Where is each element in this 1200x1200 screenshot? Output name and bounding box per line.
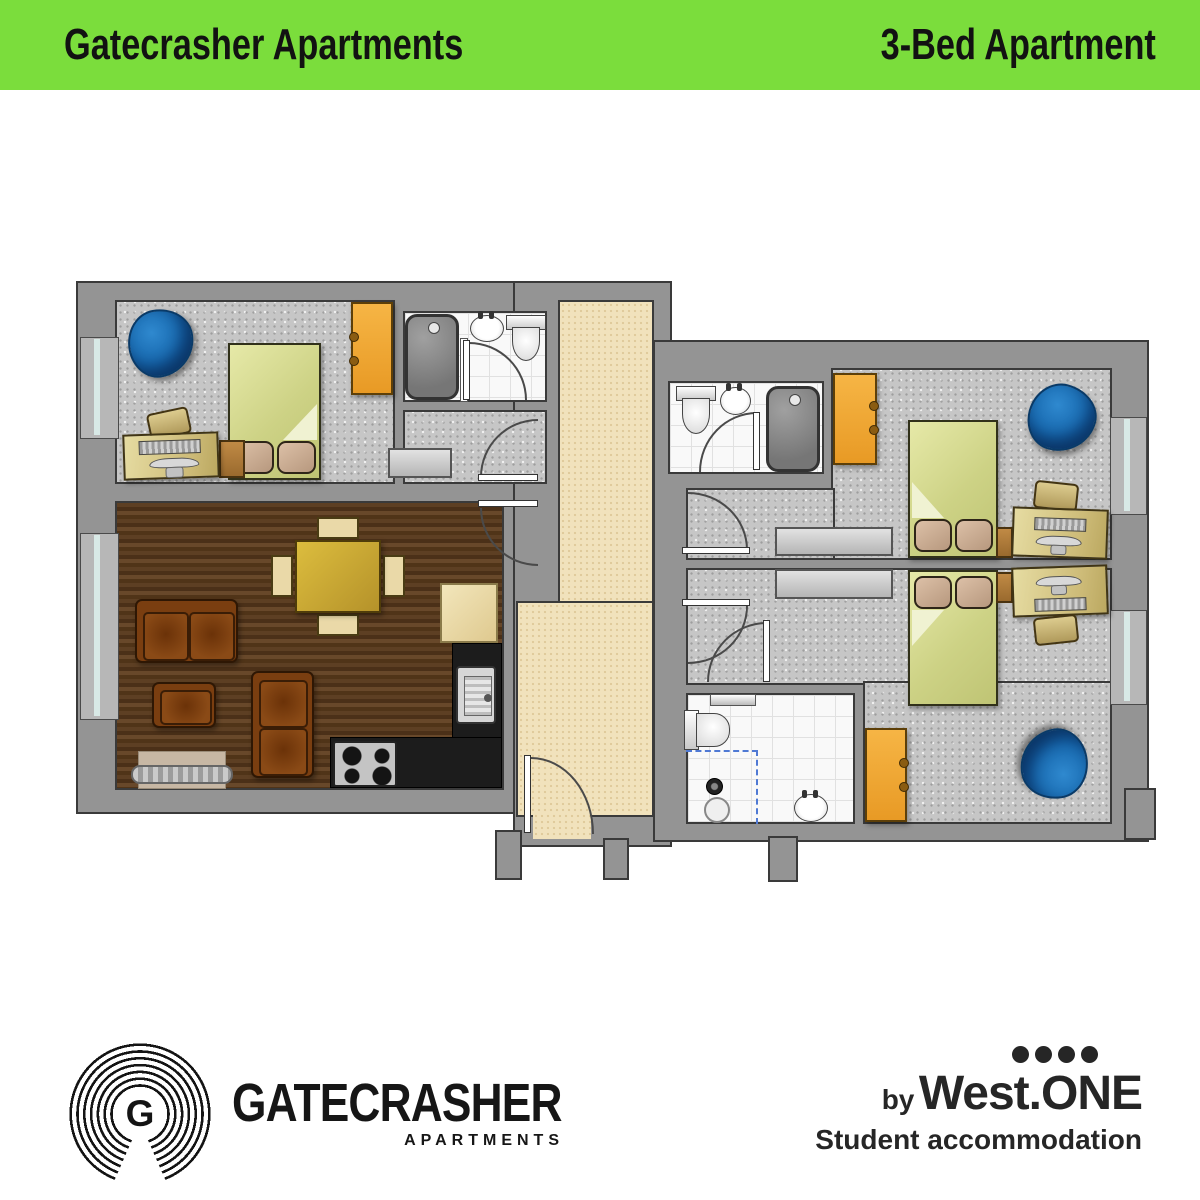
sink-3-basin [794,794,828,822]
brand-wordmark: GATECRASHER [232,1072,634,1134]
sofa-2seat [135,599,238,663]
window-2-glass [94,535,100,716]
bed-2-pillow2 [955,519,993,552]
wardrobe-3-handle [899,758,909,768]
sofa-cushion2 [189,612,235,661]
sink-1-tap2 [489,311,494,319]
dot-icon [1058,1046,1075,1063]
kitchen-sink [456,666,496,724]
desk-1-monitor-stand [165,467,183,479]
window-3-glass [1124,419,1130,511]
shower-2 [766,386,820,472]
sink-2 [718,385,752,415]
shower-floor-fitting [704,797,730,823]
wall-stub-2 [605,840,627,878]
westone-dots [1006,1046,1098,1068]
westone-name: West.ONE [919,1067,1142,1120]
kitchen-sink-tap [484,694,492,702]
wall-stub-3 [770,838,796,880]
dining-table [295,540,381,613]
wardrobe-1 [351,302,393,395]
door-leaf-bedroom3 [682,599,750,606]
wardrobe-2 [833,373,877,465]
bed-3 [908,570,998,706]
floorplan [0,0,1200,1200]
bed-2-pillow [914,519,952,552]
sink-2-basin [720,387,751,415]
shower-2-head [789,394,801,406]
toilet-2 [676,386,714,434]
armchair [152,682,216,728]
window-4-glass [1124,612,1130,701]
desk-3-monitor-stand [1051,585,1067,596]
door-leaf-bedroom2 [682,547,750,554]
wardrobe-1-handle [349,332,359,342]
sink-1-basin [470,315,504,342]
wardrobe-2-handle [869,401,879,411]
dot-icon [1035,1046,1052,1063]
dining-chair-east [383,555,405,597]
wall-stub-1 [497,832,520,878]
stove [333,741,397,787]
sink-1 [468,313,506,342]
bed-2-fold [912,482,944,518]
sink-2-tap2 [737,383,742,391]
shower-1-head [428,322,440,334]
table-bedroom3 [775,569,893,599]
bed-1-fold [283,404,317,440]
desk-1 [122,431,220,480]
dot-icon [1081,1046,1098,1063]
bedside-table-1 [219,440,245,478]
bed-3-pillow [914,576,952,609]
brand-subtext: APARTMENTS [232,1132,564,1150]
bed-2 [908,420,998,558]
sink-3 [792,792,830,822]
toilet-3 [684,710,730,748]
door-leaf-living [478,500,538,507]
radiator-living [131,765,233,784]
desk-1-keyboard [138,439,200,455]
wardrobe-2-handle2 [869,425,879,435]
towel-rail-bathroom3 [710,694,756,706]
kitchen-worktop [440,583,498,643]
westone-logo: by West.ONE [882,1066,1142,1121]
armchair-cushion [160,690,212,725]
desk-3 [1011,564,1109,617]
desk-2-monitor-stand [1050,545,1066,556]
sink-1-tap [478,311,483,319]
sofa-cushion [143,612,189,661]
dot-icon [1012,1046,1029,1063]
desk-2-keyboard [1034,517,1086,532]
sofa-vertical-cushion [259,680,308,728]
dining-chair-south [317,614,359,636]
sink-2-tap [726,383,731,391]
toilet-1-bowl [512,327,540,361]
wardrobe-1-handle2 [349,356,359,366]
door-leaf-bathroom3 [763,620,770,682]
window-1-glass [94,339,100,435]
wall-stub-4 [1126,790,1154,838]
table-bedroom1 [388,448,452,478]
table-bedroom2 [775,527,893,556]
sofa-vertical [251,671,314,778]
dining-chair-west [271,555,293,597]
bed-1-pillow2 [277,441,316,474]
westone-by: by [882,1084,915,1115]
sofa-vertical-cushion2 [259,728,308,776]
toilet-2-bowl [682,398,710,434]
shower-drain [706,778,723,795]
bedside-table-3 [996,572,1013,603]
toilet-3-bowl [696,713,730,747]
toilet-1 [506,315,544,361]
door-leaf-entrance [524,755,531,833]
desk-3-keyboard [1034,597,1086,612]
shower-1 [405,314,459,400]
door-leaf-bathroom2 [753,412,760,470]
desk-chair-3 [1033,614,1080,646]
westone-tagline: Student accommodation [815,1124,1142,1156]
sink-3-tap2 [813,790,818,798]
brand-monogram: G [116,1090,164,1138]
bed-3-pillow2 [955,576,993,609]
page: Gatecrasher Apartments 3-Bed Apartment [0,0,1200,1200]
desk-2 [1011,506,1109,559]
wardrobe-3-handle2 [899,782,909,792]
door-leaf-bedroom1 [478,474,538,481]
bed-3-fold [912,610,944,646]
dining-chair-north [317,517,359,539]
wardrobe-3 [865,728,907,822]
sink-3-tap [802,790,807,798]
door-leaf-bathroom1 [463,340,470,400]
